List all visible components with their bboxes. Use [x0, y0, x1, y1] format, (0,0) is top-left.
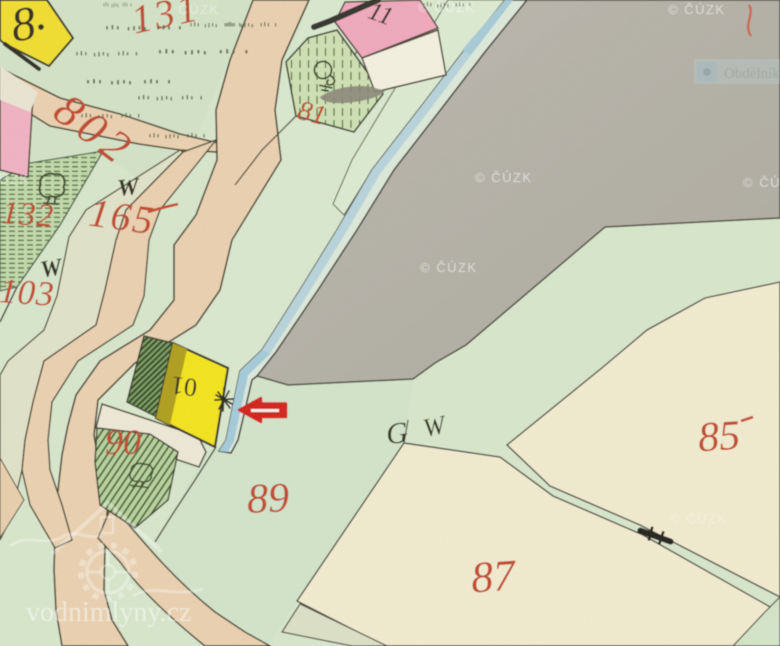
svg-text:vodnimlyny.cz: vodnimlyny.cz [26, 597, 191, 628]
svg-text:85: 85 [697, 413, 742, 462]
svg-text:G: G [385, 416, 410, 451]
svg-text:132: 132 [0, 195, 55, 235]
svg-text:Obdélníko: Obdélníko [724, 66, 780, 82]
svg-text:© ČÚZK: © ČÚZK [0, 172, 30, 187]
svg-text:89: 89 [246, 475, 290, 522]
svg-text:01: 01 [169, 371, 198, 403]
svg-text:© ČÚZK: © ČÚZK [668, 2, 726, 17]
svg-text:© ČÚZK: © ČÚZK [743, 175, 780, 190]
svg-text:© ČÚZK: © ČÚZK [162, 2, 220, 17]
svg-text:87: 87 [469, 550, 518, 602]
svg-text:© ČÚZK: © ČÚZK [670, 511, 728, 526]
svg-text:© ČÚZK: © ČÚZK [420, 260, 478, 275]
svg-text:90: 90 [105, 422, 141, 462]
svg-text:© ČÚZK: © ČÚZK [418, 0, 476, 15]
svg-text:© ČÚZK: © ČÚZK [475, 170, 533, 185]
